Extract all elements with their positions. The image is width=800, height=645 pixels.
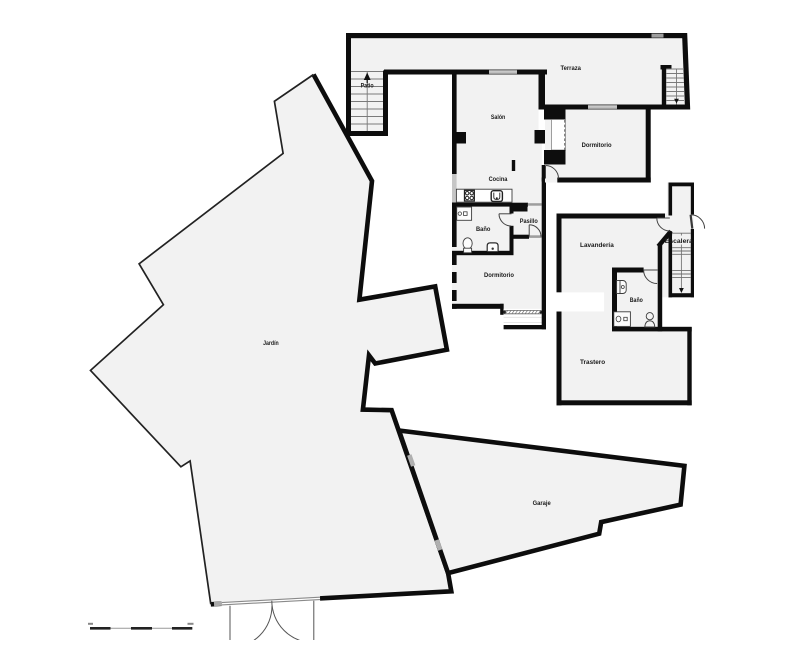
svg-text:Cocina: Cocina (489, 176, 508, 183)
svg-text:Dormitorio: Dormitorio (484, 272, 514, 279)
svg-text:Jardín: Jardín (263, 341, 279, 347)
svg-text:Lavandería: Lavandería (580, 242, 614, 249)
svg-text:Garaje: Garaje (533, 500, 551, 507)
svg-text:Terraza: Terraza (560, 65, 581, 72)
svg-text:Baño: Baño (476, 226, 490, 233)
svg-text:Escalera: Escalera (665, 238, 693, 245)
svg-text:Trastero: Trastero (580, 359, 605, 366)
svg-text:Salón: Salón (491, 114, 505, 121)
svg-text:Pasillo: Pasillo (520, 218, 538, 225)
svg-text:Patio: Patio (361, 83, 374, 89)
svg-text:Dormitorio: Dormitorio (582, 142, 612, 149)
svg-text:Baño: Baño (630, 297, 643, 304)
